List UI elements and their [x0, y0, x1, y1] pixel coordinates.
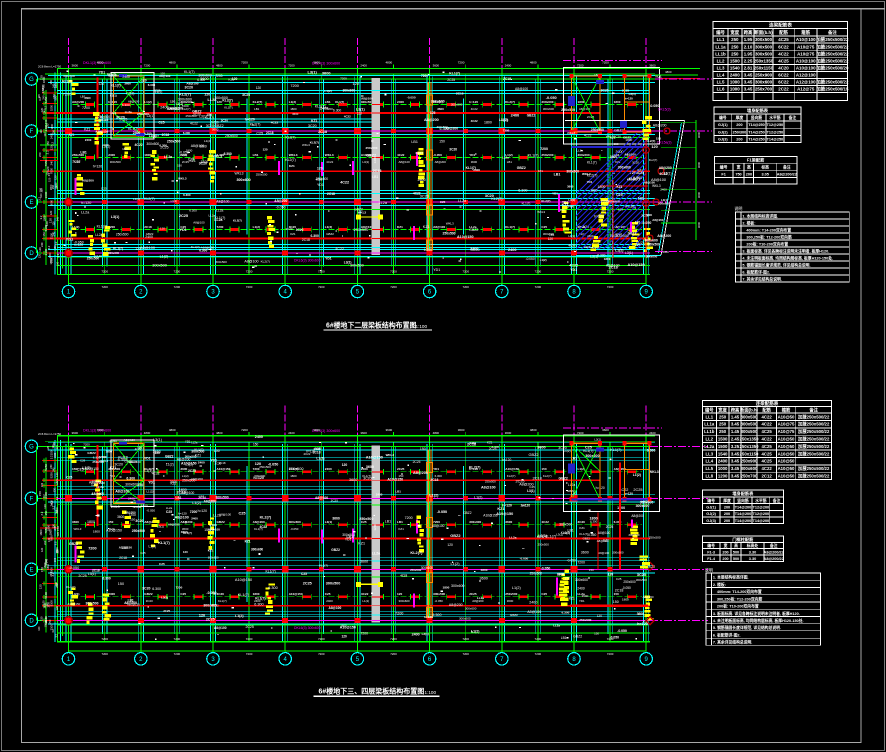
- svg-text:300x600: 300x600: [399, 599, 410, 603]
- svg-text:LL2a: LL2a: [216, 209, 223, 213]
- svg-text:6C22: 6C22: [778, 44, 789, 49]
- svg-text:1500: 1500: [718, 437, 728, 442]
- svg-text:A8@200: A8@200: [435, 160, 447, 164]
- svg-text:7200: 7200: [535, 652, 542, 656]
- svg-text:3600: 3600: [481, 568, 488, 572]
- svg-text:h=120: h=120: [637, 622, 648, 626]
- svg-text:120: 120: [263, 147, 268, 151]
- svg-text:3.2: 3.2: [51, 142, 55, 146]
- svg-text:120: 120: [255, 462, 261, 466]
- svg-text:T14@250: T14@250: [767, 138, 784, 142]
- svg-text:6.300: 6.300: [518, 189, 527, 193]
- svg-text:A8@100: A8@100: [481, 485, 496, 489]
- svg-text:A10@100: A10@100: [796, 58, 816, 63]
- svg-text:5100: 5100: [44, 592, 48, 599]
- svg-text:3.30: 3.30: [749, 550, 756, 554]
- svg-text:300x600: 300x600: [658, 201, 670, 205]
- svg-text:1800: 1800: [590, 189, 597, 193]
- svg-text:KL2(7): KL2(7): [286, 135, 296, 139]
- svg-text:T14@200: T14@200: [753, 519, 770, 523]
- svg-text:7200: 7200: [535, 637, 542, 641]
- svg-text:LL1b: LL1b: [704, 429, 715, 434]
- svg-text:300x500: 300x500: [342, 533, 355, 537]
- svg-text:7200: 7200: [540, 147, 548, 151]
- svg-text:4C22: 4C22: [135, 143, 143, 147]
- svg-text:YD1: YD1: [148, 481, 155, 485]
- svg-text:C25: C25: [541, 592, 547, 596]
- svg-text:4C22: 4C22: [361, 592, 369, 596]
- svg-text:250x500: 250x500: [87, 257, 100, 261]
- svg-text:LB1: LB1: [253, 153, 259, 157]
- svg-text:2C6 8mm L=1750: 2C6 8mm L=1750: [38, 432, 61, 436]
- svg-text:A8@100: A8@100: [399, 160, 411, 164]
- svg-text:L1(2): L1(2): [146, 489, 153, 493]
- svg-text:120: 120: [46, 166, 50, 171]
- svg-text:C25: C25: [166, 510, 172, 514]
- svg-text:T14@250: T14@250: [748, 138, 765, 142]
- svg-text:7200: 7200: [174, 270, 181, 274]
- svg-text:300x500: 300x500: [741, 414, 758, 419]
- svg-text:L1(2): L1(2): [324, 89, 331, 93]
- svg-text:2400: 2400: [473, 168, 480, 172]
- svg-text:1540: 1540: [718, 451, 728, 456]
- svg-text:C25: C25: [616, 193, 622, 197]
- svg-text:1800: 1800: [253, 592, 260, 596]
- svg-text:2C25: 2C25: [331, 499, 339, 503]
- svg-text:2C6 8mm L=1750: 2C6 8mm L=1750: [38, 65, 61, 69]
- svg-text:L1(2): L1(2): [540, 258, 547, 262]
- svg-text:250x500: 250x500: [443, 231, 456, 235]
- svg-text:编号: 编号: [707, 543, 715, 548]
- svg-text:E: E: [29, 200, 33, 206]
- svg-text:厚度: 厚度: [723, 498, 731, 503]
- svg-text:F1-3: F1-3: [707, 550, 715, 554]
- svg-text:A10@150: A10@150: [496, 512, 513, 516]
- svg-text:300x500: 300x500: [608, 199, 620, 203]
- svg-text:KL2(7): KL2(7): [253, 100, 263, 104]
- svg-text:YD1: YD1: [325, 256, 332, 260]
- svg-text:A8@100: A8@100: [433, 225, 445, 229]
- svg-text:4800: 4800: [216, 431, 223, 435]
- svg-text:L3(1): L3(1): [161, 595, 168, 599]
- svg-text:7050: 7050: [44, 159, 48, 166]
- svg-text:120: 120: [38, 626, 41, 631]
- svg-text:7200: 7200: [577, 64, 584, 68]
- svg-text:WKL3: WKL3: [178, 176, 187, 180]
- svg-text:7200: 7200: [83, 442, 90, 446]
- svg-text:120: 120: [548, 237, 554, 241]
- svg-text:h=120: h=120: [641, 499, 650, 503]
- svg-text:7200: 7200: [101, 652, 108, 656]
- svg-text:跨高: 跨高: [731, 406, 740, 413]
- svg-text:3C20: 3C20: [485, 194, 494, 198]
- svg-text:1800: 1800: [54, 452, 57, 458]
- svg-text:4C22: 4C22: [335, 247, 344, 251]
- svg-text:YD1: YD1: [185, 439, 191, 443]
- svg-text:4C25: 4C25: [762, 444, 773, 449]
- svg-text:A8@200: A8@200: [124, 511, 136, 515]
- svg-text:3C20: 3C20: [601, 89, 609, 93]
- svg-text:3.45: 3.45: [731, 474, 740, 479]
- svg-text:150: 150: [130, 517, 135, 521]
- svg-text:3600: 3600: [349, 478, 357, 482]
- svg-text:7200: 7200: [241, 428, 248, 432]
- svg-text:6.300: 6.300: [183, 131, 191, 135]
- svg-text:2C18: 2C18: [327, 192, 335, 196]
- svg-text:150: 150: [614, 592, 619, 596]
- svg-text:连梁配筋表: 连梁配筋表: [769, 22, 792, 29]
- svg-text:KL2(7): KL2(7): [285, 158, 295, 162]
- svg-text:6.300: 6.300: [647, 449, 656, 453]
- svg-text:-0.050: -0.050: [407, 96, 416, 100]
- svg-text:1800: 1800: [484, 121, 492, 125]
- svg-text:2C25: 2C25: [153, 88, 160, 92]
- svg-text:6.300: 6.300: [333, 108, 342, 112]
- svg-text:4. 未注明板面标高, 均同结构层标高, 板厚H120-15: 4. 未注明板面标高, 均同结构层标高, 板厚H120-150处.: [713, 618, 804, 623]
- svg-text:7200: 7200: [215, 74, 222, 78]
- svg-text:2C18: 2C18: [533, 476, 542, 481]
- svg-text:300x600: 300x600: [618, 166, 631, 170]
- svg-text:YD1: YD1: [180, 228, 187, 232]
- svg-text:A8@100: A8@100: [624, 153, 636, 157]
- svg-text:WKL3: WKL3: [537, 210, 545, 214]
- svg-text:KL1(7): KL1(7): [62, 79, 72, 83]
- svg-text:A8@200: A8@200: [274, 199, 287, 203]
- svg-text:300x500: 300x500: [214, 96, 228, 100]
- svg-text:-0.050: -0.050: [567, 559, 577, 563]
- svg-text:YD1: YD1: [317, 183, 324, 187]
- svg-text:KL2(7): KL2(7): [260, 515, 272, 519]
- svg-text:5250: 5250: [50, 104, 54, 111]
- svg-text:F1-4: F1-4: [707, 557, 716, 561]
- svg-text:A10@150: A10@150: [95, 130, 108, 134]
- svg-text:编号: 编号: [707, 498, 715, 503]
- svg-text:A8@100: A8@100: [244, 260, 258, 264]
- svg-text:GJ(2): GJ(2): [706, 512, 716, 516]
- svg-text:LB1: LB1: [561, 636, 567, 640]
- svg-text:7200: 7200: [246, 637, 253, 641]
- svg-text:L1(2): L1(2): [149, 545, 156, 549]
- svg-text:3C20: 3C20: [286, 227, 293, 231]
- svg-text:A10@150: A10@150: [340, 625, 356, 629]
- svg-text:120: 120: [155, 451, 161, 455]
- svg-text:300x500: 300x500: [559, 522, 572, 526]
- svg-text:LB1: LB1: [568, 528, 574, 532]
- svg-text:L1(2): L1(2): [133, 197, 140, 201]
- svg-text:GBZ2: GBZ2: [628, 232, 637, 236]
- svg-text:LB1: LB1: [111, 111, 117, 115]
- svg-text:7. 其余详见结构总说明.: 7. 其余详见结构总说明.: [742, 276, 781, 281]
- svg-text:GBZ2: GBZ2: [469, 228, 478, 232]
- svg-text:250x500: 250x500: [366, 146, 378, 150]
- svg-text:KL1(7): KL1(7): [583, 449, 593, 453]
- svg-text:加腋250x500/22: 加腋250x500/22: [815, 57, 849, 64]
- svg-text:A8@100: A8@100: [329, 606, 342, 610]
- svg-text:LL2a: LL2a: [372, 552, 381, 556]
- svg-text:250x1350: 250x1350: [739, 437, 759, 442]
- svg-text:120: 120: [38, 94, 41, 99]
- svg-text:300x600: 300x600: [575, 578, 588, 582]
- svg-text:2C25: 2C25: [119, 118, 127, 122]
- svg-text:4C25: 4C25: [778, 37, 789, 42]
- svg-text:A10@150: A10@150: [181, 462, 197, 466]
- svg-text:G: G: [29, 77, 34, 83]
- svg-text:120: 120: [635, 221, 641, 225]
- svg-text:断面(b.h): 断面(b.h): [754, 29, 773, 36]
- svg-text:跨高: 跨高: [744, 29, 753, 36]
- svg-text:120: 120: [135, 247, 141, 251]
- svg-text:250x500: 250x500: [116, 233, 129, 237]
- svg-text:L3(1): L3(1): [527, 489, 535, 493]
- svg-text:GBZ2: GBZ2: [463, 511, 472, 515]
- svg-text:300x500: 300x500: [146, 142, 159, 146]
- svg-text:L1(2): L1(2): [235, 614, 243, 618]
- svg-text:3600: 3600: [505, 520, 512, 524]
- svg-text:300x600: 300x600: [431, 100, 445, 104]
- svg-text:A8@100: A8@100: [214, 626, 227, 630]
- svg-text:300x600: 300x600: [578, 153, 590, 157]
- svg-text:150: 150: [560, 208, 565, 212]
- svg-text:配筋: 配筋: [762, 406, 771, 413]
- svg-text:250x500: 250x500: [289, 466, 304, 471]
- svg-text:3600: 3600: [72, 520, 79, 524]
- svg-text:4800: 4800: [169, 61, 176, 65]
- svg-text:水平筋: 水平筋: [754, 498, 767, 503]
- svg-text:G: G: [29, 445, 34, 451]
- svg-text:KL2(7): KL2(7): [319, 563, 328, 567]
- svg-text:150: 150: [122, 546, 128, 550]
- svg-text:A10@150: A10@150: [235, 577, 252, 582]
- svg-text:6.300: 6.300: [148, 83, 156, 87]
- svg-text:L1(2): L1(2): [429, 492, 439, 497]
- svg-text:7200: 7200: [318, 652, 325, 656]
- svg-text:3C20: 3C20: [308, 124, 317, 128]
- svg-text:3.45: 3.45: [731, 459, 740, 464]
- svg-text:250: 250: [731, 37, 739, 42]
- svg-text:LB1: LB1: [397, 520, 403, 524]
- svg-text:断面(b.h): 断面(b.h): [740, 406, 758, 413]
- svg-text:120: 120: [638, 197, 644, 201]
- svg-text:4C22: 4C22: [541, 520, 549, 524]
- svg-text:200: 200: [724, 512, 730, 516]
- svg-text:1800: 1800: [47, 525, 51, 531]
- svg-text:300x500: 300x500: [755, 51, 773, 56]
- svg-text:1800: 1800: [46, 563, 50, 569]
- svg-text:-0.050: -0.050: [610, 636, 620, 640]
- svg-text:3C20: 3C20: [142, 587, 150, 591]
- svg-text:120: 120: [48, 537, 51, 542]
- svg-text:200: 200: [722, 550, 728, 554]
- svg-text:6.300: 6.300: [590, 519, 598, 523]
- svg-text:120: 120: [651, 145, 657, 149]
- svg-text:4800: 4800: [433, 431, 440, 435]
- svg-text:120: 120: [317, 167, 323, 171]
- svg-text:L1(2): L1(2): [362, 599, 369, 603]
- svg-text:6.300: 6.300: [102, 576, 110, 580]
- svg-text:120: 120: [447, 543, 453, 547]
- svg-text:6.300: 6.300: [492, 445, 500, 449]
- svg-text:LL3: LL3: [705, 451, 713, 456]
- svg-text:150: 150: [520, 504, 525, 508]
- svg-text:3.2: 3.2: [37, 196, 41, 200]
- svg-text:3C20: 3C20: [185, 86, 194, 90]
- svg-text:L3(1): L3(1): [308, 70, 318, 75]
- svg-text:WKL3: WKL3: [358, 210, 367, 214]
- svg-text:说明: 说明: [705, 567, 713, 573]
- svg-text:300x500: 300x500: [167, 107, 180, 111]
- svg-text:3C20: 3C20: [637, 573, 646, 577]
- svg-text:7200: 7200: [318, 637, 325, 641]
- svg-text:1800: 1800: [617, 506, 625, 510]
- svg-text:配筋: 配筋: [779, 29, 788, 36]
- svg-text:YD1: YD1: [144, 457, 151, 461]
- svg-text:6.300: 6.300: [126, 476, 135, 480]
- svg-text:1800: 1800: [622, 598, 629, 602]
- svg-text:120: 120: [342, 463, 348, 467]
- svg-text:1800: 1800: [50, 123, 54, 129]
- svg-text:A10@50: A10@50: [778, 437, 795, 442]
- svg-text:WKL3: WKL3: [325, 153, 334, 157]
- svg-text:300x600: 300x600: [543, 107, 554, 111]
- svg-text:KZ1: KZ1: [84, 128, 90, 132]
- svg-text:250x500: 250x500: [354, 228, 369, 232]
- svg-text:A8@100: A8@100: [361, 97, 373, 101]
- svg-text:KZ1: KZ1: [569, 597, 575, 601]
- svg-text:7200: 7200: [405, 516, 413, 520]
- svg-text:C25: C25: [80, 459, 86, 463]
- svg-text:2.81: 2.81: [744, 65, 753, 70]
- svg-text:C25: C25: [180, 592, 186, 596]
- svg-text:A8@100: A8@100: [527, 610, 541, 614]
- svg-text:L3(1): L3(1): [88, 572, 96, 576]
- svg-text:1800: 1800: [141, 504, 148, 508]
- svg-text:GJ(3): GJ(3): [718, 138, 728, 142]
- svg-text:KL2(7): KL2(7): [179, 92, 192, 97]
- svg-text:KZ1: KZ1: [311, 119, 317, 123]
- svg-text:7200: 7200: [395, 612, 403, 616]
- svg-text:1:100: 1:100: [416, 324, 428, 329]
- svg-text:A8@200: A8@200: [659, 166, 672, 170]
- svg-text:1200: 1200: [718, 474, 728, 479]
- svg-text:500: 500: [733, 550, 739, 554]
- svg-text:2400: 2400: [360, 64, 367, 68]
- svg-text:备注: 备注: [809, 406, 818, 413]
- svg-text:240: 240: [51, 231, 55, 236]
- svg-text:T12@200: T12@200: [753, 506, 770, 510]
- svg-text:300x500: 300x500: [361, 100, 373, 104]
- svg-text:4C22: 4C22: [344, 114, 351, 118]
- svg-text:150: 150: [44, 622, 48, 627]
- svg-text:4C22: 4C22: [135, 447, 142, 451]
- svg-text:编号: 编号: [716, 29, 725, 36]
- svg-text:1800: 1800: [44, 602, 47, 608]
- svg-text:A8@200: A8@200: [191, 477, 203, 481]
- svg-text:3600: 3600: [458, 428, 465, 432]
- svg-text:WKL3: WKL3: [582, 172, 591, 176]
- svg-text:2400: 2400: [85, 138, 92, 142]
- svg-text:7200: 7200: [462, 652, 469, 656]
- svg-text:C25: C25: [159, 562, 165, 566]
- svg-text:KL1(7): KL1(7): [111, 84, 121, 88]
- svg-text:LB1: LB1: [395, 490, 401, 494]
- svg-text:120: 120: [40, 547, 44, 552]
- svg-text:YD1: YD1: [552, 192, 558, 196]
- svg-text:3.2: 3.2: [50, 501, 54, 505]
- svg-text:3600: 3600: [332, 517, 340, 521]
- svg-text:LL4: LL4: [705, 459, 713, 464]
- svg-text:2C18: 2C18: [302, 238, 310, 242]
- svg-text:2400: 2400: [133, 131, 141, 135]
- svg-text:A8@100: A8@100: [219, 513, 231, 517]
- svg-text:WKL3: WKL3: [111, 505, 120, 509]
- svg-text:L1(2): L1(2): [474, 496, 482, 500]
- svg-text:1800: 1800: [614, 100, 621, 104]
- svg-text:1800: 1800: [87, 520, 95, 524]
- svg-text:C25: C25: [101, 186, 107, 190]
- svg-text:3.45: 3.45: [731, 422, 740, 427]
- svg-text:300x600: 300x600: [585, 454, 599, 458]
- svg-text:2C18: 2C18: [72, 160, 80, 164]
- svg-text:7200: 7200: [390, 652, 397, 656]
- svg-text:120: 120: [44, 132, 47, 137]
- svg-text:120: 120: [52, 444, 55, 449]
- svg-text:150: 150: [54, 245, 57, 250]
- svg-text:4C22: 4C22: [568, 243, 576, 247]
- svg-text:150: 150: [594, 632, 599, 636]
- svg-text:7200: 7200: [390, 270, 397, 274]
- svg-text:7200: 7200: [535, 285, 542, 289]
- svg-text:4C22: 4C22: [762, 437, 773, 442]
- svg-text:GBZ2: GBZ2: [614, 128, 624, 132]
- svg-text:120: 120: [160, 226, 165, 230]
- svg-text:YD1: YD1: [433, 268, 440, 272]
- svg-text:250: 250: [731, 51, 739, 56]
- svg-text:3.2: 3.2: [47, 245, 51, 249]
- svg-text:YD1: YD1: [469, 153, 475, 157]
- svg-text:KZ1: KZ1: [290, 232, 296, 236]
- svg-text:A8@200: A8@200: [643, 595, 654, 599]
- svg-text:加腋250x500/20: 加腋250x500/20: [815, 64, 849, 71]
- svg-text:KZ1: KZ1: [617, 185, 623, 189]
- svg-text:3600: 3600: [507, 599, 514, 603]
- svg-text:300x500: 300x500: [451, 102, 463, 106]
- svg-text:150: 150: [57, 261, 60, 266]
- svg-text:2C18: 2C18: [318, 130, 327, 134]
- svg-text:300x500: 300x500: [326, 581, 341, 585]
- svg-text:150: 150: [439, 140, 445, 144]
- svg-text:500: 500: [733, 557, 739, 561]
- svg-text:7200: 7200: [318, 285, 325, 289]
- svg-text:厚度: 厚度: [736, 115, 744, 120]
- svg-text:竖向筋: 竖向筋: [737, 498, 749, 503]
- svg-text:标高处: 标高处: [746, 543, 759, 548]
- svg-text:1000: 1000: [730, 80, 740, 85]
- svg-text:A8@100: A8@100: [598, 551, 609, 555]
- svg-text:A8@200: A8@200: [124, 601, 137, 605]
- svg-text:LL2a: LL2a: [576, 149, 583, 153]
- svg-text:2400: 2400: [191, 517, 198, 521]
- svg-text:GJ(1): GJ(1): [706, 506, 716, 510]
- svg-text:-0.050: -0.050: [541, 566, 551, 570]
- svg-text:300x600: 300x600: [63, 74, 75, 78]
- svg-text:KZ1: KZ1: [195, 453, 201, 457]
- svg-text:3.05: 3.05: [762, 172, 769, 176]
- svg-text:3600: 3600: [72, 431, 79, 435]
- svg-text:LL2a: LL2a: [164, 155, 172, 159]
- svg-text:L3(1): L3(1): [664, 171, 672, 175]
- svg-text:3600: 3600: [537, 445, 546, 449]
- svg-text:250x700: 250x700: [755, 87, 773, 92]
